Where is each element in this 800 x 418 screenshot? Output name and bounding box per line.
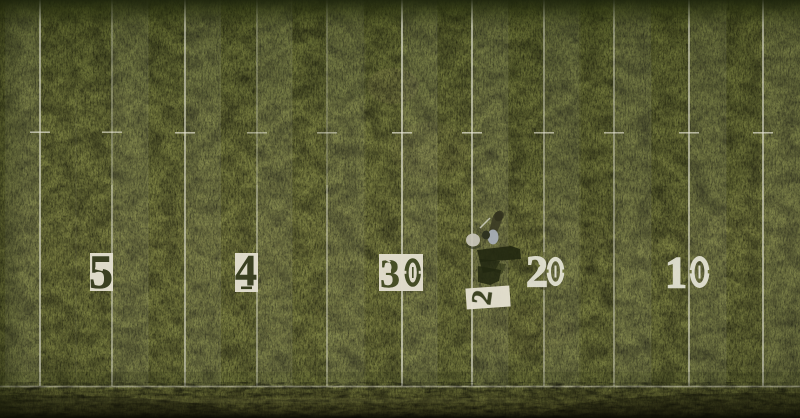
svg-text:5: 5 — [89, 246, 113, 299]
svg-text:1: 1 — [665, 248, 687, 297]
svg-text:2: 2 — [526, 247, 548, 296]
svg-text:3: 3 — [380, 251, 400, 296]
